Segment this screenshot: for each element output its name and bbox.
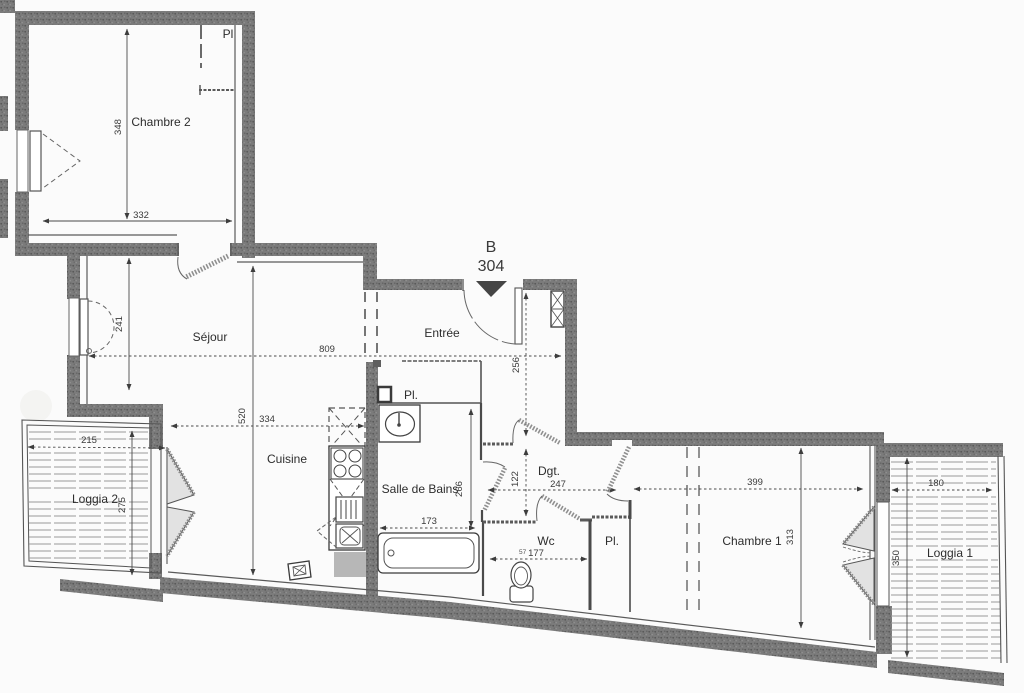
svg-text:Dgt.: Dgt. <box>538 464 560 478</box>
svg-text:Salle de Bains: Salle de Bains <box>382 482 459 496</box>
svg-text:275: 275 <box>117 497 128 513</box>
svg-text:348: 348 <box>113 119 124 135</box>
svg-text:177: 177 <box>528 548 544 559</box>
svg-text:266: 266 <box>454 481 465 497</box>
svg-text:399: 399 <box>747 477 763 488</box>
svg-text:256: 256 <box>511 357 522 373</box>
svg-text:Pl: Pl <box>223 27 234 41</box>
svg-text:332: 332 <box>133 210 149 221</box>
svg-text:Cuisine: Cuisine <box>267 452 307 466</box>
svg-text:122: 122 <box>510 471 521 487</box>
svg-text:Entrée: Entrée <box>424 326 460 340</box>
svg-text:Séjour: Séjour <box>193 330 228 344</box>
svg-text:334: 334 <box>259 414 275 425</box>
svg-text:520: 520 <box>237 408 248 424</box>
svg-text:Loggia 2: Loggia 2 <box>72 492 118 506</box>
svg-text:Chambre 1: Chambre 1 <box>722 534 782 548</box>
svg-text:Loggia 1: Loggia 1 <box>927 546 973 560</box>
svg-text:247: 247 <box>550 479 566 490</box>
svg-text:215: 215 <box>81 435 97 446</box>
svg-text:350: 350 <box>891 550 902 566</box>
svg-text:Wc: Wc <box>537 534 554 548</box>
svg-text:Chambre 2: Chambre 2 <box>131 115 191 129</box>
svg-text:Pl.: Pl. <box>404 388 418 402</box>
svg-text:809: 809 <box>319 344 335 355</box>
svg-text:313: 313 <box>785 529 796 545</box>
svg-text:B: B <box>486 239 497 256</box>
svg-text:180: 180 <box>928 478 944 489</box>
svg-text:173: 173 <box>421 516 437 527</box>
svg-text:Pl.: Pl. <box>605 534 619 548</box>
svg-text:304: 304 <box>478 258 505 275</box>
svg-text:57: 57 <box>519 549 527 556</box>
svg-text:241: 241 <box>114 316 125 332</box>
